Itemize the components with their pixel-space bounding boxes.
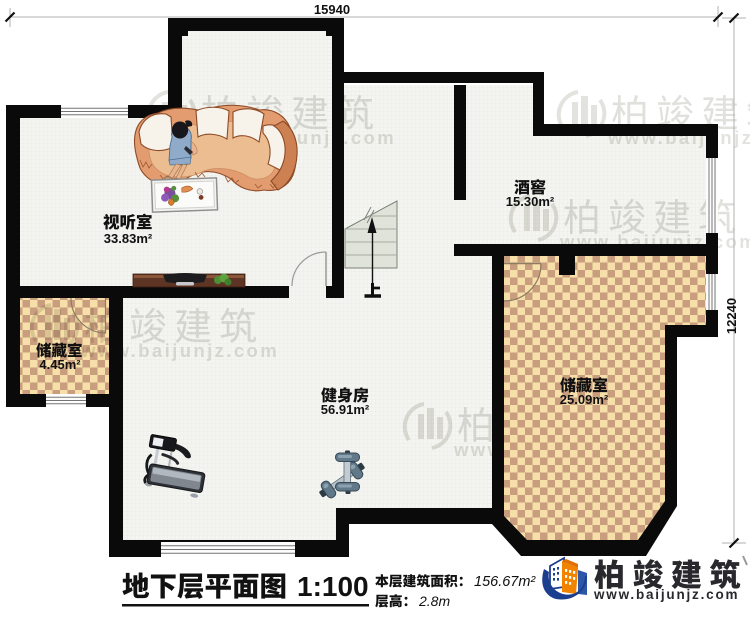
svg-text:33.83m²: 33.83m² <box>104 231 153 246</box>
svg-text:56.91m²: 56.91m² <box>321 402 370 417</box>
svg-text:15940: 15940 <box>314 2 350 17</box>
svg-text:www.baijunjz.com: www.baijunjz.com <box>593 587 739 602</box>
svg-text:15.30m²: 15.30m² <box>506 194 555 209</box>
svg-text:2.8m: 2.8m <box>418 593 450 609</box>
svg-text:12240: 12240 <box>724 298 739 334</box>
svg-text:4.45m²: 4.45m² <box>39 357 81 372</box>
svg-text:1:100: 1:100 <box>297 571 369 602</box>
svg-text:25.09m²: 25.09m² <box>560 392 609 407</box>
svg-text:156.67m²: 156.67m² <box>474 574 536 590</box>
